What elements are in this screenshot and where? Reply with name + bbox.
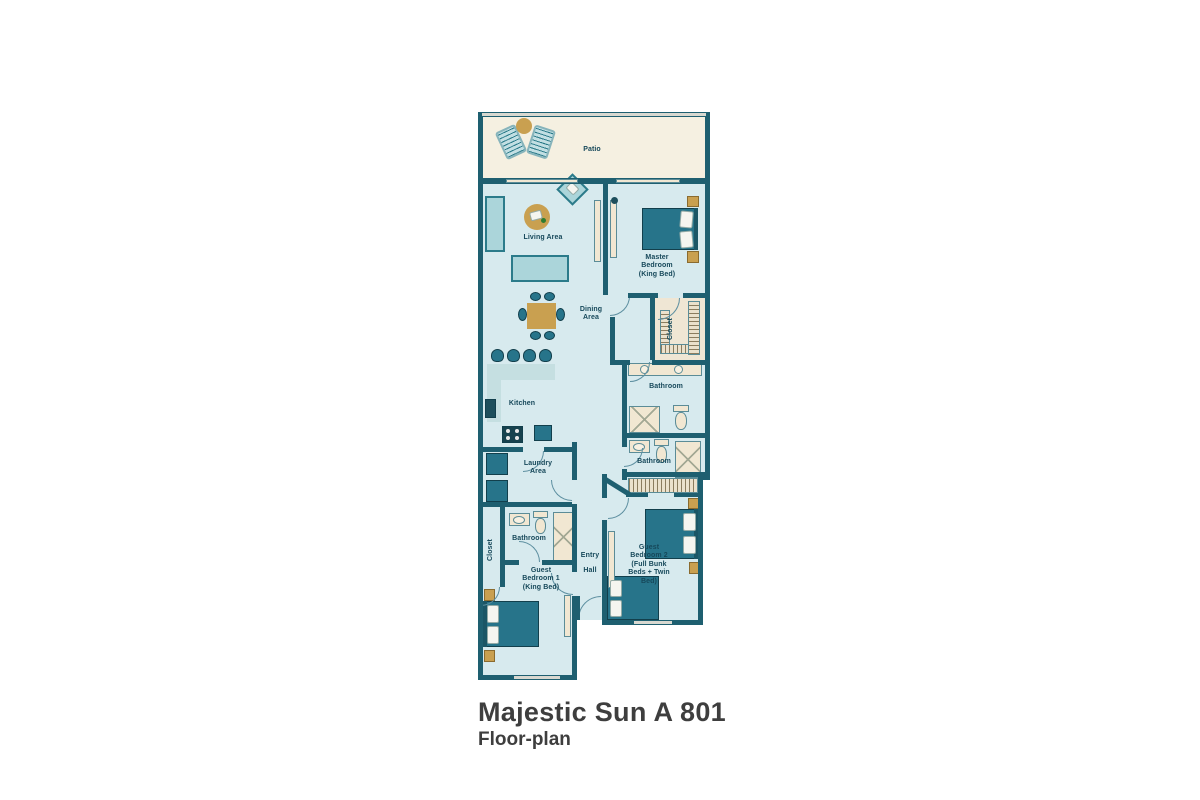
pillow — [487, 626, 499, 644]
wall — [483, 447, 523, 452]
toilet-tank — [673, 405, 689, 412]
window — [514, 676, 560, 679]
dining-chair — [544, 292, 555, 301]
plan-subtitle: Floor-plan — [478, 729, 726, 751]
dining-table — [527, 303, 556, 329]
shower — [629, 406, 660, 433]
nightstand — [687, 196, 699, 207]
pillow — [683, 513, 696, 531]
pillow — [683, 536, 696, 554]
room-label-guest1: Guest Bedroom 1 (King Bed) — [518, 567, 564, 592]
sink-basin — [513, 516, 525, 524]
room-label-dining: Dining Area — [573, 306, 609, 323]
wall — [626, 472, 698, 477]
plan-title: Majestic Sun A 801 — [478, 697, 726, 728]
burner — [506, 436, 510, 440]
room-label-patio: Patio — [568, 146, 616, 154]
room-label-guest1-bath: Bathroom — [504, 535, 554, 543]
toilet-bowl — [535, 518, 546, 534]
pillow — [610, 580, 622, 597]
plant-icon — [611, 197, 618, 204]
pillow — [610, 600, 622, 617]
room-label-hall-bath: Bathroom — [625, 458, 683, 466]
wall — [698, 472, 710, 480]
room-label-living: Living Area — [514, 234, 572, 242]
wall — [603, 178, 608, 295]
sofa — [485, 196, 505, 252]
wall — [652, 360, 710, 365]
room-label-guest2: Guest Bedroom 2 (Full Bunk Beds + Twin B… — [624, 544, 674, 586]
pillow — [679, 230, 693, 248]
toilet-tank — [533, 511, 548, 518]
kitchen-sink — [485, 399, 496, 418]
wall — [478, 502, 572, 507]
room-label-guest1-closet: Closet — [487, 530, 497, 570]
bar-stool — [491, 349, 504, 362]
wall — [610, 317, 615, 365]
title-block: Majestic Sun A 801 Floor-plan — [478, 697, 726, 751]
wall — [505, 560, 519, 565]
wall — [544, 447, 572, 452]
burner — [515, 436, 519, 440]
dining-chair — [544, 331, 555, 340]
pillow — [679, 210, 693, 228]
washer — [486, 453, 508, 475]
closet-hangers — [688, 301, 700, 355]
closet-hangers — [628, 478, 698, 493]
wall — [650, 298, 655, 360]
mirror — [564, 595, 571, 637]
plant-icon — [541, 218, 546, 223]
bar-stool — [523, 349, 536, 362]
window — [634, 621, 672, 624]
sliding-door — [616, 179, 680, 183]
refrigerator — [534, 425, 552, 441]
floor-plan-canvas: Patio Living Area Dining Area Kitchen La… — [0, 0, 1200, 800]
pillow — [487, 605, 499, 623]
sliding-door — [610, 200, 617, 258]
toilet-tank — [654, 439, 669, 446]
bar-stool — [507, 349, 520, 362]
sliding-door — [594, 200, 601, 262]
room-label-laundry: Laundry Area — [517, 460, 559, 477]
dining-chair — [530, 331, 541, 340]
headboard — [694, 208, 698, 250]
nightstand — [687, 251, 699, 263]
wall — [572, 442, 577, 480]
patio-table — [516, 118, 532, 134]
shower — [553, 512, 574, 562]
dryer — [486, 480, 508, 502]
entry-door-leaf — [577, 596, 580, 620]
floor-plan: Patio Living Area Dining Area Kitchen La… — [478, 112, 710, 680]
wall — [610, 360, 630, 365]
toilet-bowl — [675, 412, 687, 430]
room-label-kitchen: Kitchen — [498, 400, 546, 408]
wall — [627, 433, 710, 438]
dining-chair — [518, 308, 527, 321]
stove — [502, 426, 523, 443]
wall — [698, 480, 703, 625]
dining-chair — [530, 292, 541, 301]
burner — [515, 429, 519, 433]
nightstand — [484, 650, 495, 662]
sofa — [511, 255, 569, 282]
wall — [674, 493, 700, 497]
dining-chair — [556, 308, 565, 321]
wall — [478, 112, 483, 680]
patio-railing — [482, 113, 706, 116]
wall — [683, 293, 710, 298]
bar-stool — [539, 349, 552, 362]
wall — [500, 507, 505, 587]
room-label-entry: Entry Hall — [577, 549, 603, 578]
burner — [506, 429, 510, 433]
wall — [542, 560, 572, 565]
room-label-master-closet: Closet — [667, 309, 677, 349]
sliding-door — [506, 179, 578, 183]
room-label-master-bath: Bathroom — [628, 383, 704, 391]
room-label-master: Master Bedroom (King Bed) — [632, 254, 682, 279]
vanity-sink — [674, 365, 683, 374]
